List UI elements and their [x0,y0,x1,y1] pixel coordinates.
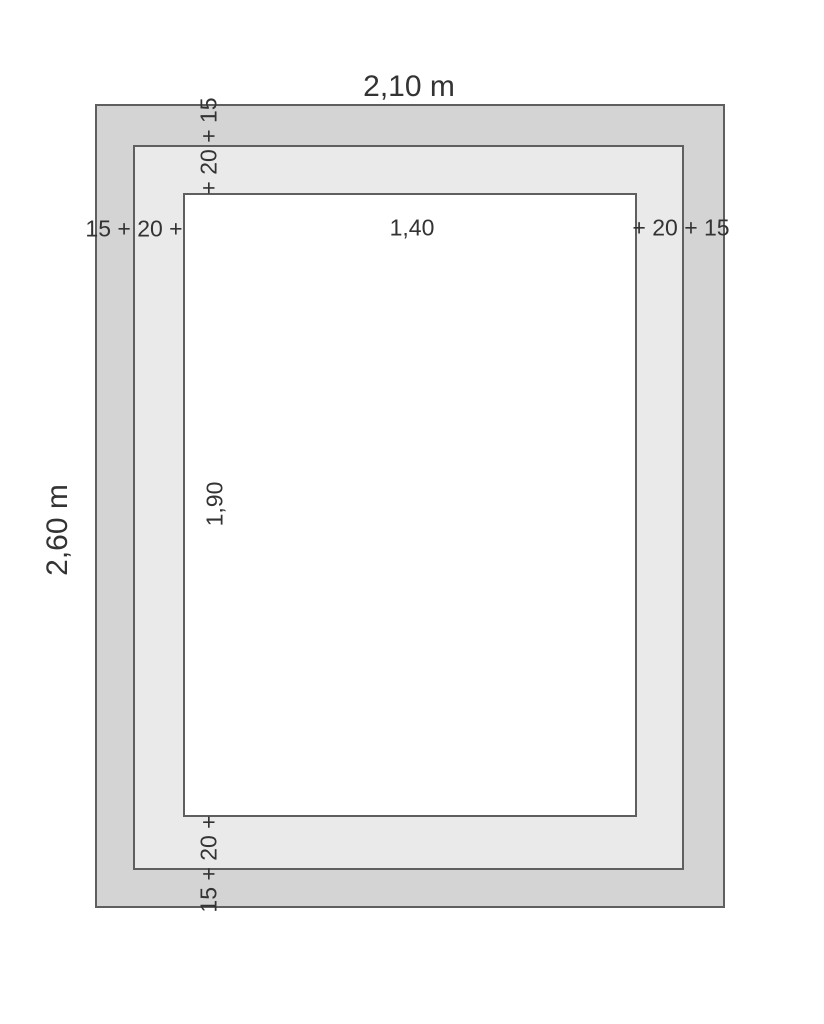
total-width-label: 2,10 m [363,72,455,102]
inner-width-label: 1,40 [390,217,435,240]
inner-height-label: 1,90 [204,482,227,527]
dimension-diagram: 2,10 m 2,60 m + 20 + 15 15 + 20 + + 20 +… [0,0,824,1024]
border-right-dimension-label: + 20 + 15 [632,217,729,240]
inner-rectangle [183,193,637,817]
border-top-dimension-label: + 20 + 15 [198,97,221,194]
border-left-dimension-label: 15 + 20 + [85,218,182,241]
total-height-label: 2,60 m [43,484,73,576]
border-bottom-dimension-label: 15 + 20 + [198,815,221,912]
